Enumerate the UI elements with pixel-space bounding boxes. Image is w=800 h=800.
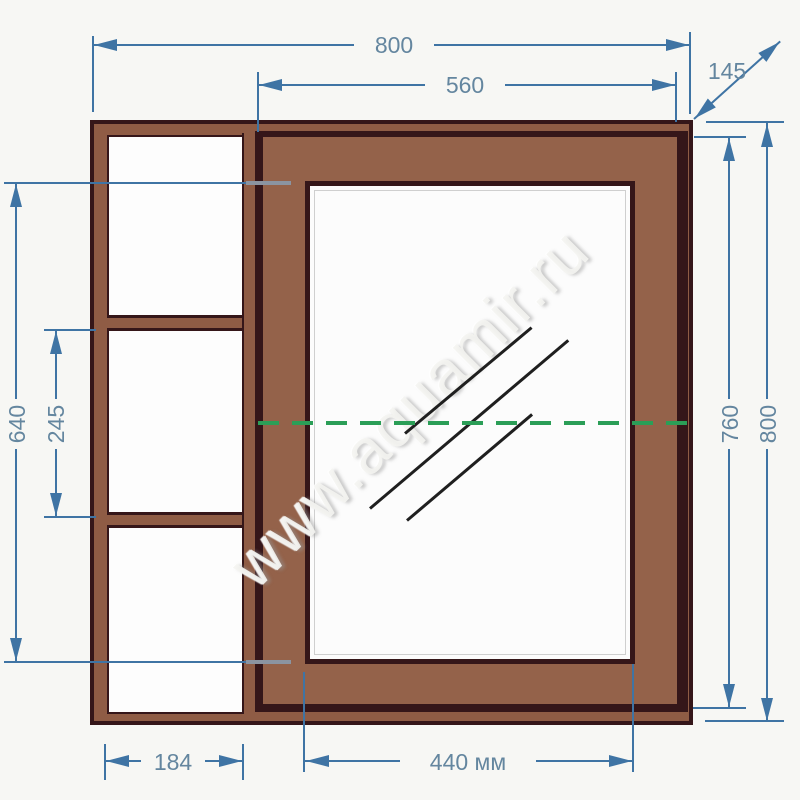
arrowhead-top800-right	[666, 39, 689, 51]
arrowhead-560-right	[652, 79, 675, 91]
ext-line-245-bottom	[44, 516, 96, 518]
dim-label-mirror-width: 440 мм	[400, 750, 536, 774]
arrowhead-640-top	[10, 184, 22, 207]
shelf-lower	[107, 512, 242, 528]
arrowhead-640-bottom	[10, 638, 22, 661]
ext-line-760-bottom	[693, 707, 746, 709]
arrowhead-440-right	[609, 755, 632, 767]
ext-line-184-right	[242, 744, 244, 780]
dim-label-shelf-width: 184	[141, 750, 205, 774]
ext-line-440-right	[632, 664, 634, 772]
dim-label-shelf-spacing: 245	[44, 399, 68, 449]
ext-overlap-640-bottom	[246, 660, 291, 664]
shelf-upper	[107, 315, 242, 331]
arrowhead-760-top	[723, 138, 735, 161]
dim-label-opening-height: 640	[5, 399, 29, 449]
dim-label-total-height: 800	[756, 399, 780, 449]
arrowhead-760-bottom	[723, 684, 735, 707]
arrowhead-560-left	[259, 79, 282, 91]
arrowhead-184-right	[219, 755, 242, 767]
ext-line-760-top	[694, 136, 746, 138]
arrowhead-184-left	[106, 755, 129, 767]
technical-drawing-canvas: www.aquamir.ru 800 560 145 760 800 640	[0, 0, 800, 800]
ext-line-440-left	[303, 672, 305, 772]
ext-line-right800-top	[706, 121, 784, 123]
dim-label-door-width: 560	[425, 73, 505, 97]
arrowhead-right800-top	[761, 124, 773, 147]
dim-label-depth: 145	[698, 59, 756, 83]
ext-overlap-640-top	[246, 181, 291, 185]
arrowhead-right800-bottom	[761, 698, 773, 721]
dim-label-top-width: 800	[354, 33, 434, 57]
arrowhead-245-top	[50, 331, 62, 354]
ext-line-560-right	[675, 72, 677, 122]
dim-label-door-height: 760	[718, 399, 742, 449]
center-axis-dashed-line	[258, 421, 688, 425]
arrowhead-245-bottom	[50, 493, 62, 516]
arrowhead-top800-left	[94, 39, 117, 51]
arrowhead-440-left	[306, 755, 329, 767]
